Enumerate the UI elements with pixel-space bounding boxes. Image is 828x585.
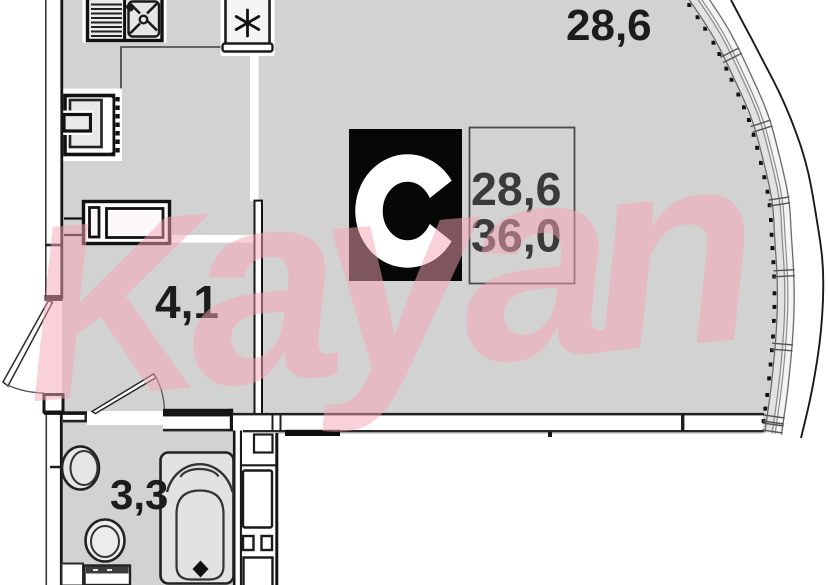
svg-text:3,3: 3,3 [110, 471, 168, 518]
svg-text:28,6: 28,6 [566, 1, 652, 50]
